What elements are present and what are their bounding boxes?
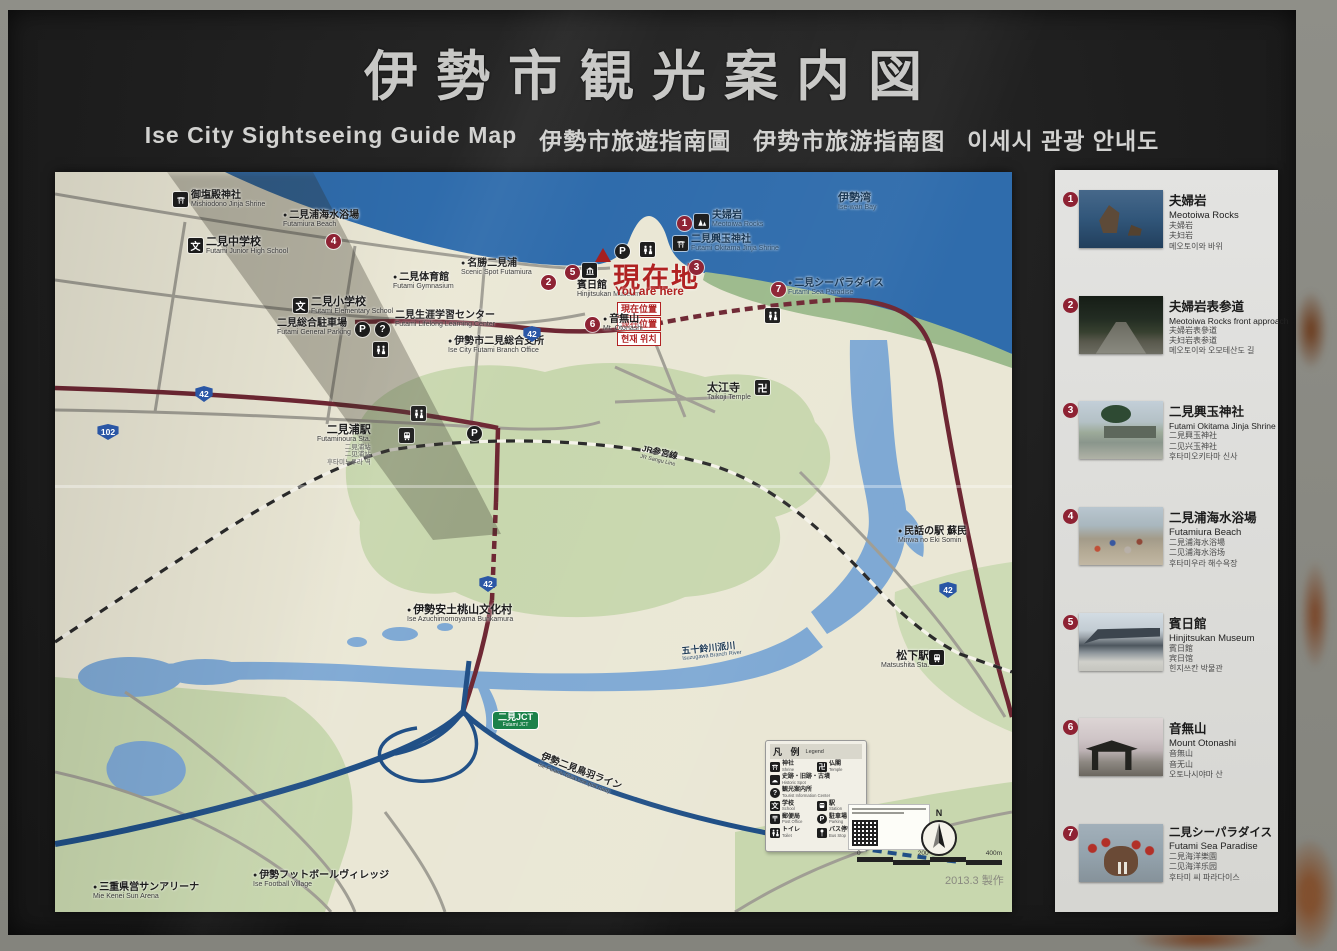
toilet-icon — [765, 308, 780, 323]
map-marker-3: 3 — [689, 260, 704, 275]
poi-number-badge: 6 — [1063, 720, 1078, 735]
poi-entry-mount-otonashi: 6 音無山 Mount Otonashi 音無山 音无山 오토나시야마 산 — [1063, 718, 1270, 790]
bus-stop-icon — [817, 828, 827, 838]
label-bunkamura: 伊勢安土桃山文化村 Ise Azuchimomoyama Bunkamura — [407, 604, 513, 624]
label-meotoiwa: 夫婦岩 Meotoiwa Rocks — [712, 210, 763, 229]
rust-stain — [1294, 290, 1328, 370]
mount-otonashi-photo — [1079, 718, 1163, 776]
approach-road-photo — [1079, 296, 1163, 354]
legend-tourist-info: ?観光案内所Tourist Information Center — [770, 787, 862, 798]
parking-icon: P — [817, 814, 827, 824]
map-credit: 2013.3 製作 — [945, 872, 1004, 888]
tourist-info-icon: ? — [375, 322, 390, 337]
you-are-here-en: You are here — [615, 286, 684, 298]
sign-subtitle: Ise City Sightseeing Guide Map 伊勢市旅遊指南圖 … — [8, 122, 1296, 156]
label-sun-arena: 三重県営サンアリーナ Mie Kenei Sun Arena — [93, 882, 199, 901]
torii-icon — [173, 192, 188, 207]
qr-code — [852, 820, 878, 846]
label-ise-bay: 伊勢湾 Ise-wan Bay — [838, 192, 877, 212]
map-marker-7: 7 — [771, 282, 786, 297]
map-marker-1: 1 — [677, 216, 692, 231]
temple-icon: 卍 — [755, 380, 770, 395]
map-marker-5: 5 — [565, 265, 580, 280]
poi-number-badge: 1 — [1063, 192, 1078, 207]
historic-icon — [770, 775, 780, 785]
scale-0: 0 — [857, 850, 861, 857]
label-matsushita-station: 松下駅 Matsushita Sta. — [881, 650, 929, 670]
you-are-here-marker — [595, 248, 611, 262]
school-icon: 文 — [770, 801, 780, 811]
label-mt-otonashi: 音無山 Mt. Otonashi — [603, 314, 643, 333]
poi-number-badge: 3 — [1063, 403, 1078, 418]
rust-stain — [1300, 560, 1330, 670]
legend-header: 凡 例 Legend — [770, 744, 862, 759]
scale-bar-segments — [857, 858, 1002, 863]
label-lifelong-learning-center: 二見生涯学習センター Futami Lifelong Learning Cent… — [395, 310, 495, 329]
sea-paradise-photo — [1079, 824, 1163, 882]
label-mishiodono-shrine: 御塩殿神社 Mishiodono Jinja Shrine — [191, 190, 265, 209]
tourist-info-icon: ? — [770, 788, 780, 798]
legend-school: 文学校School — [770, 801, 815, 812]
sign-title: 伊勢市観光案内図 — [8, 32, 1296, 111]
city-map: 伊勢湾 Ise-wan Bay 御塩殿神社 Mishiodono Jinja S… — [55, 172, 1012, 912]
scale-bar: 0 200 400m — [857, 850, 1002, 863]
parking-icon: P — [467, 426, 482, 441]
label-futami-elementary: 二見小学校 Futami Elementary School — [311, 296, 393, 316]
parking-icon: P — [355, 322, 370, 337]
compass-north-label: N — [917, 808, 961, 818]
torii-icon — [770, 762, 780, 772]
label-okitama-shrine: 二見興玉神社 Futami Okitama Jinja Shrine — [691, 234, 779, 253]
label-sea-paradise: 二見シーパラダイス Futami Sea Paradise — [788, 278, 884, 297]
poi-entry-meotoiwa: 1 夫婦岩 Meotoiwa Rocks 夫婦岩 夫妇岩 메오토이와 바위 — [1063, 190, 1270, 262]
sign-board: 伊勢市観光案内図 Ise City Sightseeing Guide Map … — [8, 10, 1296, 935]
poi-entry-approach: 2 夫婦岩表参道 Meotoiwa Rocks front approach 夫… — [1063, 296, 1270, 368]
poi-entry-hinjitsukan: 5 賓日館 Hinjitsukan Museum 賓日館 宾日馆 힌지쓰칸 박물… — [1063, 613, 1270, 685]
toilet-icon — [373, 342, 388, 357]
label-futami-gymnasium: 二見体育館 Futami Gymnasium — [393, 272, 454, 291]
label-minwa-no-eki: 民話の駅 蘇民 Minwa no Eki Somin — [898, 526, 967, 545]
meotoiwa-rocks-photo — [1079, 190, 1163, 248]
poi-number-badge: 7 — [1063, 826, 1078, 841]
hinjitsukan-photo — [1079, 613, 1163, 671]
map-marker-4: 4 — [326, 234, 341, 249]
post-office-icon: 〒 — [770, 814, 780, 824]
subtitle-chinese-traditional: 伊勢市旅遊指南圖 — [539, 122, 731, 156]
scale-200: 200 — [918, 850, 929, 857]
label-scenic-futamiura: 名勝二見浦 Scenic Spot Futamiura — [461, 258, 532, 277]
signboard-photo: 伊勢市観光案内図 Ise City Sightseeing Guide Map … — [0, 0, 1337, 951]
legend-toilet: トイレToilet — [770, 827, 815, 838]
meotoiwa-rocks-icon — [694, 214, 709, 229]
school-icon: 文 — [293, 298, 308, 313]
label-futamiura-beach: 二見浦海水浴場 Futamiura Beach — [283, 210, 359, 229]
poi-sidebar: 1 夫婦岩 Meotoiwa Rocks 夫婦岩 夫妇岩 메오토이와 바위 2 … — [1055, 170, 1278, 912]
map-marker-6: 6 — [585, 317, 600, 332]
okitama-shrine-photo — [1079, 401, 1163, 459]
subtitle-korean: 이세시 관광 안내도 — [967, 122, 1159, 156]
label-futami-junior-high: 二見中学校 Futami Junior High School — [206, 236, 288, 256]
poi-entry-sea-paradise: 7 二見シーパラダイス Futami Sea Paradise 二見海洋樂園 二… — [1063, 824, 1270, 896]
subtitle-english: Ise City Sightseeing Guide Map — [145, 122, 518, 156]
museum-icon — [582, 263, 597, 278]
futami-jct-sign: 二見JCT Futami JCT — [493, 712, 538, 729]
map-marker-2: 2 — [541, 275, 556, 290]
label-taikoji-temple: 太江寺 Taikoji Temple — [707, 382, 751, 402]
you-are-here-ko: 현재 위치 — [617, 332, 661, 346]
hill-green-central — [346, 363, 830, 617]
station-icon — [817, 801, 827, 811]
poi-number-badge: 5 — [1063, 615, 1078, 630]
temple-icon: 卍 — [817, 762, 827, 772]
toilet-icon — [640, 242, 655, 257]
legend-shrine: 神社Shrine — [770, 761, 815, 772]
futamiura-beach-photo — [1079, 507, 1163, 565]
legend-temple: 卍仏閣Temple — [817, 761, 862, 772]
legend-post-office: 〒郵便局Post Office — [770, 814, 815, 825]
poi-number-badge: 2 — [1063, 298, 1078, 313]
toilet-icon — [411, 406, 426, 421]
poi-entry-futamiura-beach: 4 二見浦海水浴場 Futamiura Beach 二見浦海水浴場 二见浦海水浴… — [1063, 507, 1270, 579]
torii-icon — [673, 236, 688, 251]
poi-number-badge: 4 — [1063, 509, 1078, 524]
station-icon — [929, 650, 944, 665]
qr-caption-lines — [852, 808, 926, 818]
poi-entry-okitama-shrine: 3 二見興玉神社 Futami Okitama Jinja Shrine 二見興… — [1063, 401, 1270, 473]
school-icon: 文 — [188, 238, 203, 253]
label-futaminoura-station: 二見浦駅 Futaminoura Sta. 二見浦站 二见浦站 후타미노우라 역 — [317, 424, 371, 466]
label-futami-parking: 二見総合駐車場 Futami General Parking — [277, 318, 351, 337]
toilet-icon — [770, 828, 780, 838]
legend-historic-spot: 史跡・旧跡・古墳Historic Spot — [770, 774, 862, 785]
scale-400: 400m — [986, 850, 1002, 857]
subtitle-chinese-simplified: 伊势市旅游指南图 — [753, 122, 945, 156]
station-icon — [399, 428, 414, 443]
label-football-village: 伊勢フットボールヴィレッジ Ise Football Village — [253, 870, 389, 889]
